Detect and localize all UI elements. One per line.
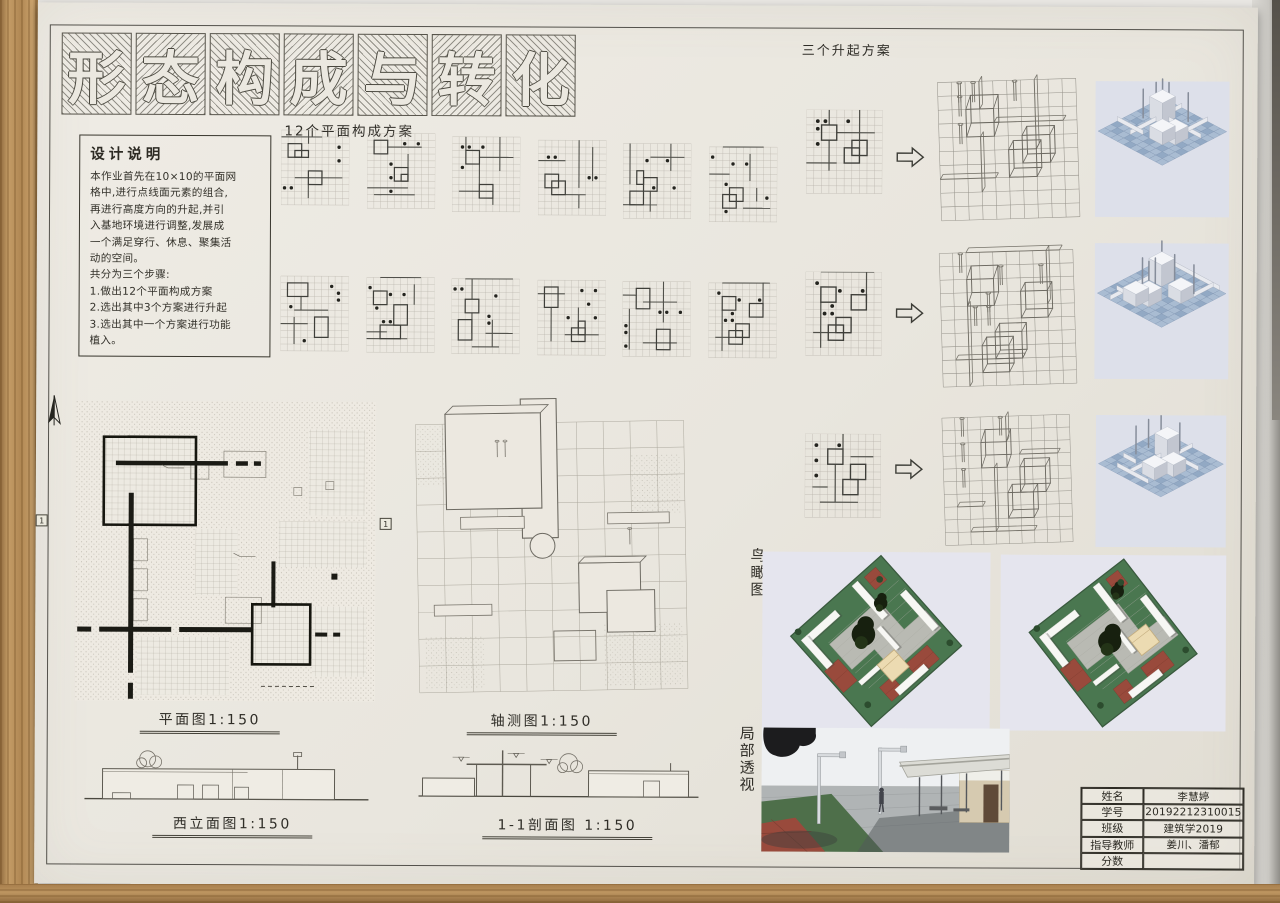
rising-section-label: 三个升起方案 <box>802 40 892 59</box>
plan-scheme-grid <box>537 280 605 356</box>
rise-arrow-icon <box>895 302 925 324</box>
board-title-hatched-lettering: 形态构成与转化 <box>61 32 575 116</box>
title-character: 转 <box>432 35 500 115</box>
design-notes-line: 动的空间。 <box>90 251 260 268</box>
wood-frame-left <box>0 0 38 903</box>
north-arrow-icon <box>42 392 66 428</box>
title-character-box: 化 <box>505 34 575 116</box>
birdseye-render-image-2 <box>997 555 1230 732</box>
title-block-value: 李慧婷 <box>1143 788 1243 805</box>
plan-scheme-grid <box>623 143 691 219</box>
west-elevation-drawing <box>82 747 370 808</box>
plan-scheme-grid <box>366 277 434 353</box>
west-elevation-label: 西立面图1:150 <box>152 813 312 839</box>
design-notes-line: 本作业首先在10×10的平面网 <box>90 169 260 186</box>
selected-scheme-grid <box>805 434 881 518</box>
title-character-box: 与 <box>357 34 427 116</box>
plan-scheme-grid <box>281 129 349 205</box>
title-character: 形 <box>62 33 130 113</box>
plan-scheme-grid <box>538 140 606 216</box>
plan-scheme-grid <box>367 133 435 209</box>
title-character-box: 构 <box>209 33 279 115</box>
presentation-board-sheet: 形态构成与转化 设计说明 本作业首先在10×10的平面网格中,进行点线面元素的组… <box>34 2 1258 888</box>
massing-render-image <box>1094 415 1229 548</box>
design-notes-box: 设计说明 本作业首先在10×10的平面网格中,进行点线面元素的组合,再进行高度方… <box>78 135 271 358</box>
design-notes-title: 设计说明 <box>90 143 260 165</box>
title-block: 姓名李慧婷学号20192212310015班级建筑学2019指导教师姜川、潘郁分… <box>1080 787 1244 871</box>
section-marker-left: 1 <box>36 514 48 526</box>
axon-drawing-label: 轴测图1:150 <box>467 710 617 736</box>
plan-scheme-grid <box>451 278 519 354</box>
selected-scheme-grid <box>805 272 881 356</box>
title-block-value: 姜川、潘郁 <box>1143 837 1243 854</box>
plan-scheme-grid <box>708 146 776 222</box>
rise-arrow-icon <box>894 458 924 480</box>
selected-scheme-grid <box>806 110 882 194</box>
design-notes-line: 1.做出12个平面构成方案 <box>90 283 260 300</box>
design-notes-line: 3.选出其中一个方案进行功能 <box>89 316 259 333</box>
plan-scheme-grid <box>622 281 690 357</box>
title-block-label: 班级 <box>1081 820 1143 836</box>
title-block-value: 20192212310015 <box>1143 804 1243 821</box>
design-notes-line: 一个满足穿行、休息、聚集活 <box>90 234 260 251</box>
design-notes-text: 本作业首先在10×10的平面网格中,进行点线面元素的组合,再进行高度方向的升起,… <box>89 169 260 350</box>
title-character-box: 形 <box>61 32 131 114</box>
title-character: 成 <box>284 34 352 114</box>
axon-wireframe-drawing <box>930 52 1095 229</box>
title-character: 化 <box>506 35 574 115</box>
title-block-label: 姓名 <box>1081 788 1143 804</box>
title-block-label: 指导教师 <box>1081 836 1143 852</box>
title-block-value <box>1143 853 1243 870</box>
axon-wireframe-drawing <box>929 390 1094 553</box>
title-block-value: 建筑学2019 <box>1143 821 1243 838</box>
axon-wireframe-drawing <box>929 224 1094 395</box>
section-drawing <box>418 744 700 807</box>
title-character: 构 <box>210 34 278 114</box>
section-marker-right: 1 <box>380 518 392 530</box>
massing-render-image <box>1095 69 1230 230</box>
plan-schemes-grid-area <box>38 2 1258 7</box>
birdseye-render-image-1 <box>762 552 991 731</box>
plan-scheme-grid <box>452 136 520 212</box>
design-notes-line: 共分为三个步骤: <box>90 267 260 284</box>
plan-scheme-grid <box>280 275 348 351</box>
design-notes-line: 2.选出其中3个方案进行升起 <box>90 300 260 317</box>
title-character: 与 <box>358 35 426 115</box>
perspective-label: 局部透视 <box>736 725 757 793</box>
title-character-box: 成 <box>283 33 353 115</box>
design-notes-line: 再进行高度方向的升起,并引 <box>90 201 260 218</box>
title-block-label: 分数 <box>1081 853 1143 869</box>
plan-drawing-label: 平面图1:150 <box>140 709 280 735</box>
wood-frame-bottom <box>0 884 1280 903</box>
title-block-label: 学号 <box>1081 804 1143 820</box>
massing-render-image <box>1094 231 1229 392</box>
title-character: 态 <box>136 34 204 114</box>
design-notes-line: 格中,进行点线面元素的组合, <box>90 185 260 202</box>
design-notes-line: 植入。 <box>89 333 259 350</box>
design-notes-line: 入基地环境进行调整,发展成 <box>90 218 260 235</box>
title-character-box: 转 <box>431 34 501 116</box>
plan-scheme-grid <box>708 282 776 358</box>
site-plan-drawing <box>75 401 376 702</box>
rise-arrow-icon <box>895 146 925 168</box>
wall-dark-sliver <box>1272 0 1280 420</box>
axonometric-drawing <box>401 396 704 705</box>
perspective-render-image <box>761 728 1010 853</box>
section-drawing-label: 1-1剖面图 1:150 <box>482 814 652 840</box>
title-character-box: 态 <box>135 33 205 115</box>
photo-of-presentation-board: 形态构成与转化 设计说明 本作业首先在10×10的平面网格中,进行点线面元素的组… <box>0 0 1280 903</box>
